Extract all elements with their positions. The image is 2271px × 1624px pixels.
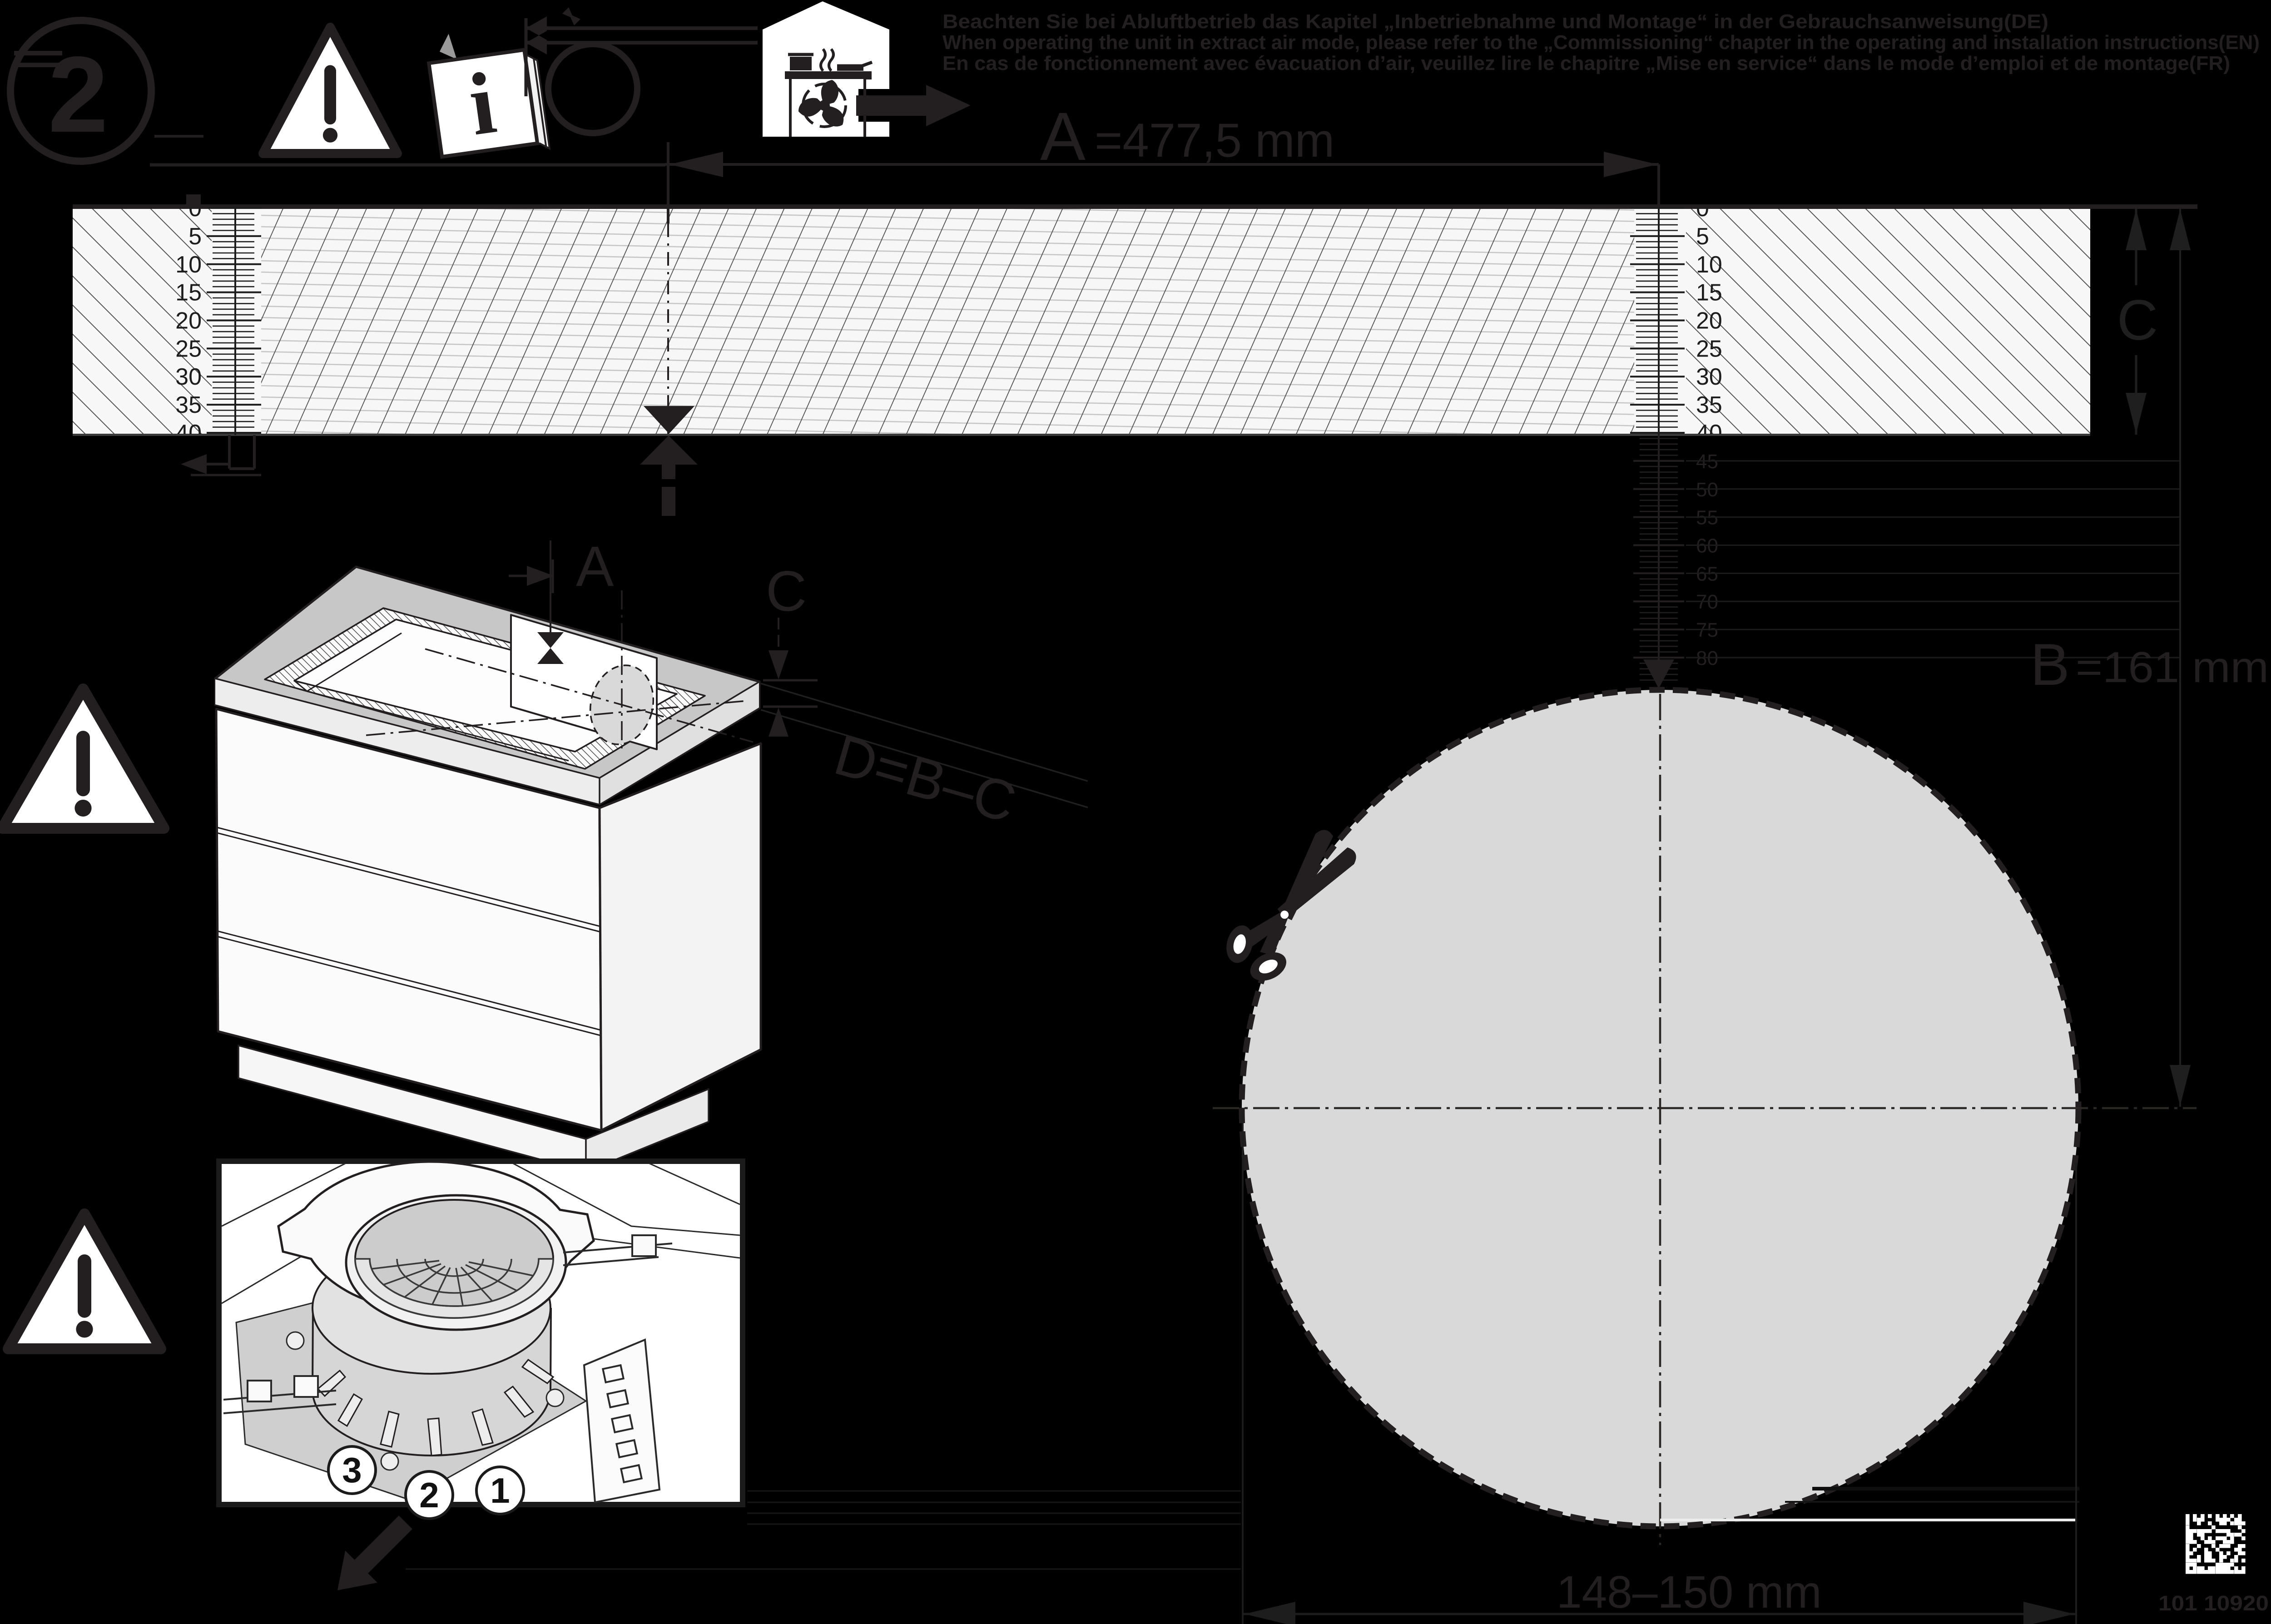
svg-text:25: 25 bbox=[175, 336, 202, 362]
svg-text:A: A bbox=[1040, 98, 1086, 174]
svg-text:25: 25 bbox=[1696, 336, 1722, 362]
svg-text:C: C bbox=[766, 560, 807, 623]
svg-text:148–150 mm: 148–150 mm bbox=[1557, 1567, 1822, 1618]
svg-text:C: C bbox=[2117, 289, 2158, 352]
svg-text:5: 5 bbox=[188, 223, 202, 250]
svg-text:2: 2 bbox=[419, 1475, 439, 1515]
svg-text:35: 35 bbox=[1696, 392, 1722, 418]
svg-text:30: 30 bbox=[175, 364, 202, 390]
svg-text:35: 35 bbox=[175, 392, 202, 418]
svg-text:10: 10 bbox=[1696, 252, 1722, 278]
svg-text:20: 20 bbox=[175, 308, 202, 334]
svg-text:30: 30 bbox=[1696, 364, 1722, 390]
svg-text:A: A bbox=[576, 535, 614, 598]
svg-text:20: 20 bbox=[1696, 308, 1722, 334]
svg-text:Beachten Sie bei Abluftbetrieb: Beachten Sie bei Abluftbetrieb das Kapit… bbox=[942, 10, 2048, 33]
svg-text:15: 15 bbox=[175, 280, 202, 306]
svg-text:10: 10 bbox=[175, 252, 202, 278]
svg-text:101 10920: 101 10920 bbox=[2158, 1591, 2269, 1615]
svg-text:=477,5 mm: =477,5 mm bbox=[1095, 114, 1334, 167]
svg-text:3: 3 bbox=[342, 1450, 362, 1490]
svg-text:5: 5 bbox=[1696, 223, 1709, 250]
svg-text:En cas de fonctionnement avec: En cas de fonctionnement avec évacuation… bbox=[942, 52, 2230, 74]
svg-text:B: B bbox=[2030, 631, 2070, 698]
svg-text:1: 1 bbox=[490, 1471, 510, 1510]
svg-text:15: 15 bbox=[1696, 280, 1722, 306]
svg-text:When operating the unit in ext: When operating the unit in extract air m… bbox=[942, 31, 2260, 54]
svg-text:=161 mm: =161 mm bbox=[2076, 643, 2269, 692]
